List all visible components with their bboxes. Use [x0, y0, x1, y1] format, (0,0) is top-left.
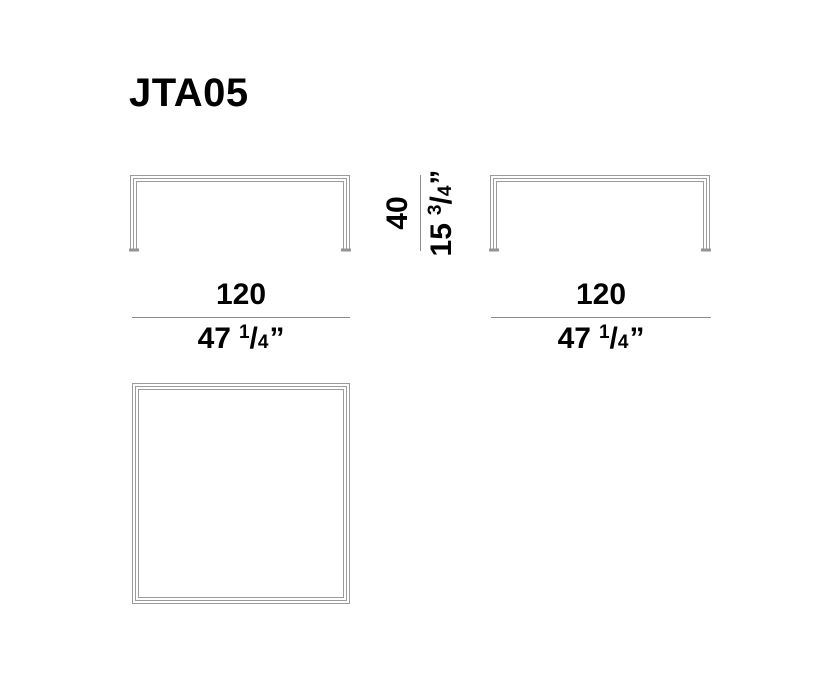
front-width-frac-numerator: 1	[239, 322, 250, 343]
side-width-dimension: 120 471/4”	[491, 280, 711, 358]
height-dimension-divider	[420, 175, 421, 251]
front-width-metric-value: 120	[216, 280, 266, 310]
side-right-foot	[701, 249, 711, 252]
side-width-unit-mark: ”	[629, 322, 644, 355]
side-width-frac-slash: /	[610, 322, 618, 355]
technical-drawing	[0, 0, 840, 679]
height-imperial-value: 153/4”	[427, 170, 461, 257]
side-width-dimension-divider	[491, 317, 711, 318]
front-width-dimension-divider	[132, 317, 350, 318]
front-width-frac-slash: /	[250, 322, 258, 355]
front-width-unit-mark: ”	[269, 322, 284, 355]
front-elevation-drawing	[129, 176, 351, 252]
top-view-drawing	[133, 384, 350, 604]
side-elevation-drawing	[489, 176, 711, 252]
side-width-metric-value: 120	[576, 280, 626, 310]
front-right-foot	[341, 249, 351, 252]
front-width-frac-denominator: 4	[258, 332, 269, 353]
side-width-imperial-whole: 47	[558, 322, 591, 355]
side-width-imperial-value: 471/4”	[558, 324, 645, 358]
front-width-imperial-whole: 47	[198, 322, 231, 355]
front-left-foot	[129, 249, 139, 252]
front-width-dimension: 120 471/4”	[132, 280, 350, 358]
side-width-frac-denominator: 4	[618, 332, 629, 353]
front-width-imperial-value: 471/4”	[198, 324, 285, 358]
height-metric-value: 40	[383, 196, 413, 229]
height-frac-denominator: 4	[435, 186, 456, 197]
height-frac-numerator: 3	[425, 204, 446, 215]
height-unit-mark: ”	[425, 170, 458, 185]
height-dimension: 40 153/4”	[379, 153, 465, 273]
side-left-foot	[489, 249, 499, 252]
height-imperial-whole: 15	[425, 223, 458, 256]
side-width-frac-numerator: 1	[599, 322, 610, 343]
